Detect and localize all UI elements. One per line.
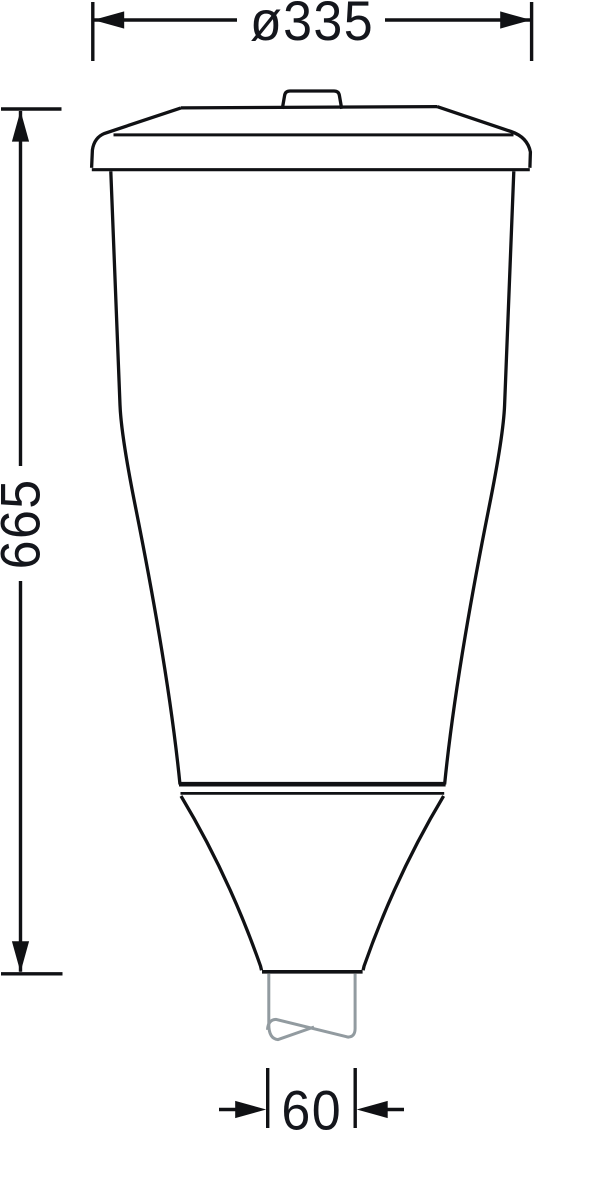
svg-text:60: 60 bbox=[281, 1080, 342, 1142]
svg-text:665: 665 bbox=[0, 478, 52, 569]
svg-text:ø335: ø335 bbox=[250, 0, 374, 52]
